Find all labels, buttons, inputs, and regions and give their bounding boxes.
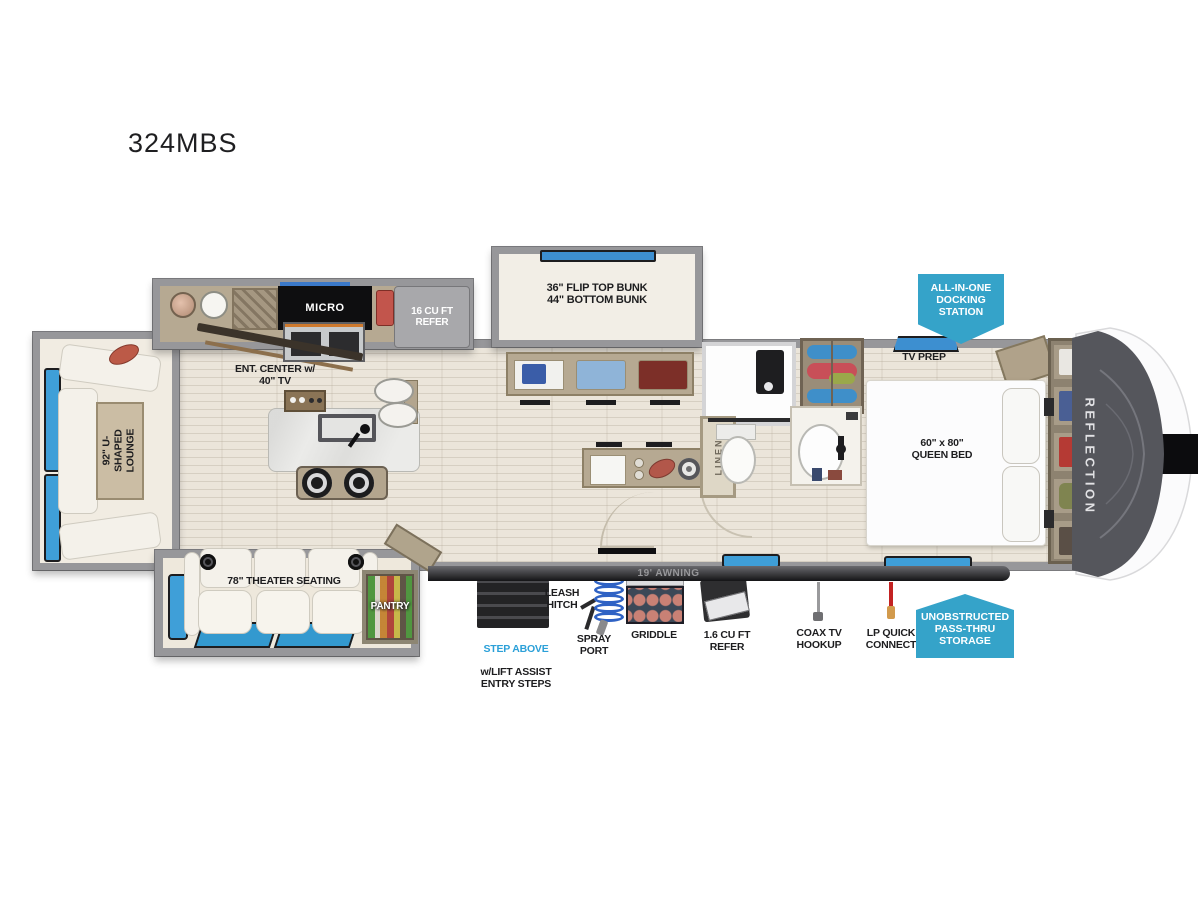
- awning-label: 19' AWNING: [638, 568, 700, 579]
- entry-door-icon: [598, 548, 656, 554]
- soccer-ball-icon: [678, 458, 700, 480]
- leash-hitch-label: LEASH HITCH: [538, 588, 586, 612]
- dinette-chair-icon: [374, 378, 414, 404]
- dinette-chair-icon: [378, 402, 418, 428]
- refrigerator-label: 16 CU FT REFER: [411, 306, 453, 328]
- bunk-label: 36" FLIP TOP BUNK 44" BOTTOM BUNK: [500, 282, 694, 307]
- spray-port-coil-icon: [594, 612, 624, 622]
- lift-assist-label: w/LIFT ASSIST ENTRY STEPS: [480, 666, 551, 690]
- brand-wrap: REFLECTION: [1078, 366, 1102, 546]
- step-above-label: STEP ABOVE: [468, 644, 564, 656]
- kitchen-drawer: [232, 288, 278, 330]
- bunk-window-icon: [540, 250, 656, 262]
- bed-post: [1044, 398, 1054, 416]
- lounge-label-wrap: 92" U-SHAPED LOUNGE: [84, 398, 154, 504]
- football-icon: [646, 455, 679, 482]
- kitchen-sink-icon: [200, 291, 228, 319]
- pillow-icon: [1002, 388, 1040, 464]
- coax-connector-icon: [813, 612, 823, 621]
- coax-label: COAX TV HOOKUP: [780, 628, 858, 652]
- vanity-accessory: [812, 468, 822, 481]
- sofa-seat-cushion: [198, 590, 252, 634]
- drawer-handle-icon: [596, 442, 622, 447]
- hall-dresser: [582, 448, 704, 488]
- pantry: PANTRY: [362, 570, 418, 644]
- towel-bar-icon: [708, 418, 790, 422]
- vanity-faucet-knob: [836, 444, 846, 454]
- island-faucet-icon: [360, 424, 370, 434]
- kitchen-decor-icon: [376, 290, 394, 326]
- speaker-icon: [200, 554, 216, 570]
- bar-stool-icon: [344, 468, 374, 498]
- theater-label: 78" THEATER SEATING: [204, 576, 364, 588]
- vanity-accessory: [846, 412, 858, 420]
- pillow-icon: [1002, 466, 1040, 542]
- pass-thru-storage-badge: UNOBSTRUCTED PASS-THRU STORAGE: [916, 594, 1014, 658]
- griddle-icon: [626, 586, 684, 624]
- drawer-handle-icon: [520, 400, 550, 405]
- toilet-icon: [720, 436, 756, 484]
- refrigerator: 16 CU FT REFER: [394, 286, 470, 348]
- queen-bed-label: 60" x 80" QUEEN BED: [886, 438, 998, 462]
- steps-label: STEP ABOVE w/LIFT ASSIST ENTRY STEPS: [468, 632, 564, 691]
- drawer-handle-icon: [650, 400, 680, 405]
- floorplan-canvas: 324MBS 92" U-SHAPED LOUNGE MICRO 16 CU F…: [0, 0, 1200, 900]
- sofa-seat-cushion: [312, 590, 366, 634]
- microwave-label: MICRO: [305, 302, 344, 314]
- lp-hose-icon: [889, 582, 893, 608]
- shower-head-icon: [764, 382, 773, 391]
- lp-connector-icon: [887, 606, 895, 619]
- bath-wardrobe: [800, 338, 864, 414]
- brand-label: REFLECTION: [1083, 397, 1098, 515]
- kitchen-sink-round-icon: [170, 292, 196, 318]
- pantry-label: PANTRY: [371, 601, 410, 612]
- coffee-station: [284, 390, 326, 412]
- sofa-seat-cushion: [256, 590, 310, 634]
- bar-stool-icon: [302, 468, 332, 498]
- mini-refer-label: 1.6 CU FT REFER: [692, 630, 762, 654]
- docking-station-badge: ALL-IN-ONE DOCKING STATION: [918, 274, 1004, 344]
- bunk-dresser: [506, 352, 694, 396]
- coax-cable-icon: [817, 582, 820, 614]
- drawer-handle-icon: [586, 400, 616, 405]
- ent-center-label: ENT. CENTER w/ 40" TV: [200, 364, 350, 388]
- vanity-accessory: [828, 470, 842, 480]
- awning-bar: 19' AWNING: [428, 566, 1010, 581]
- page-title: 324MBS: [128, 128, 238, 159]
- bed-post: [1044, 510, 1054, 528]
- tv-prep-label: TV PREP: [888, 352, 960, 364]
- griddle-label: GRIDDLE: [620, 630, 688, 642]
- drawer-handle-icon: [646, 442, 672, 447]
- lounge-label: 92" U-SHAPED LOUNGE: [101, 416, 136, 486]
- speaker-icon: [348, 554, 364, 570]
